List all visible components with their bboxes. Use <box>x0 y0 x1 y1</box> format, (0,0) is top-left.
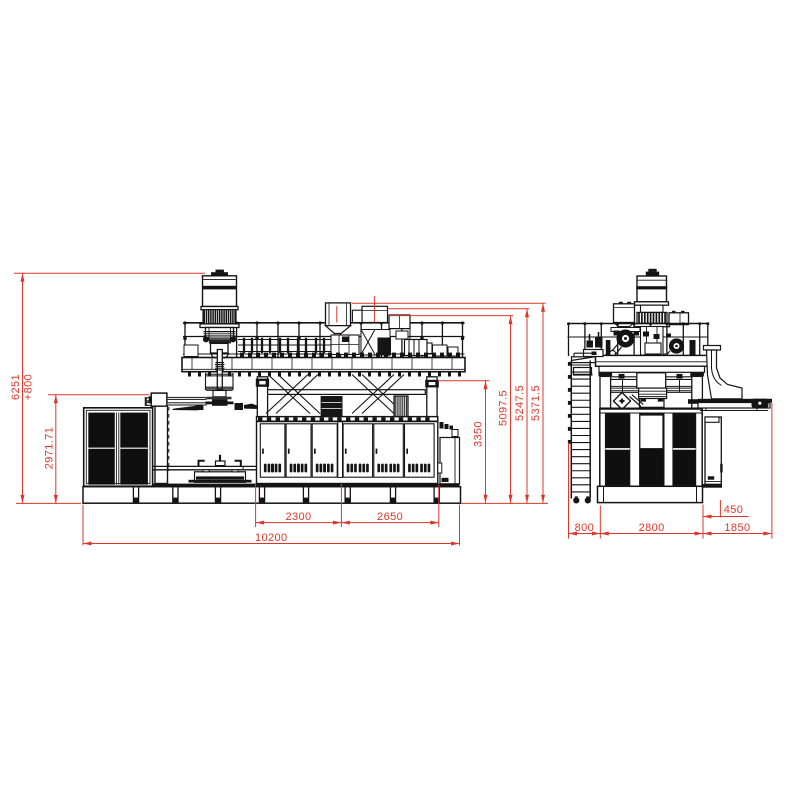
svg-text:800: 800 <box>575 522 595 534</box>
svg-text:2300: 2300 <box>285 511 311 523</box>
svg-text:6251: 6251 <box>10 374 22 400</box>
svg-text:5097.5: 5097.5 <box>498 390 510 426</box>
svg-text:2800: 2800 <box>639 522 665 534</box>
svg-text:1850: 1850 <box>724 522 750 534</box>
svg-text:3350: 3350 <box>473 421 485 447</box>
svg-text:450: 450 <box>724 504 744 516</box>
svg-text:2650: 2650 <box>377 511 403 523</box>
svg-text:10200: 10200 <box>255 532 288 544</box>
svg-text:5371.5: 5371.5 <box>530 385 542 421</box>
svg-text:2971.71: 2971.71 <box>43 427 55 470</box>
svg-text:5247.5: 5247.5 <box>514 385 526 421</box>
svg-text:+800: +800 <box>23 374 35 400</box>
